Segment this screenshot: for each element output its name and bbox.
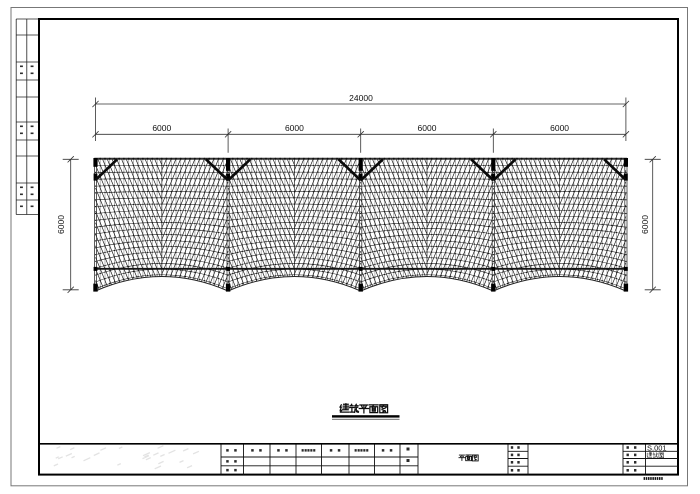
svg-text:6000: 6000 bbox=[550, 123, 569, 133]
svg-text:6000: 6000 bbox=[56, 215, 66, 234]
svg-text:24000: 24000 bbox=[349, 93, 373, 103]
svg-text:6000: 6000 bbox=[418, 123, 437, 133]
svg-text:6000: 6000 bbox=[152, 123, 171, 133]
svg-text:6000: 6000 bbox=[640, 215, 650, 234]
svg-text:S.001: S.001 bbox=[647, 444, 667, 453]
svg-text:6000: 6000 bbox=[285, 123, 304, 133]
